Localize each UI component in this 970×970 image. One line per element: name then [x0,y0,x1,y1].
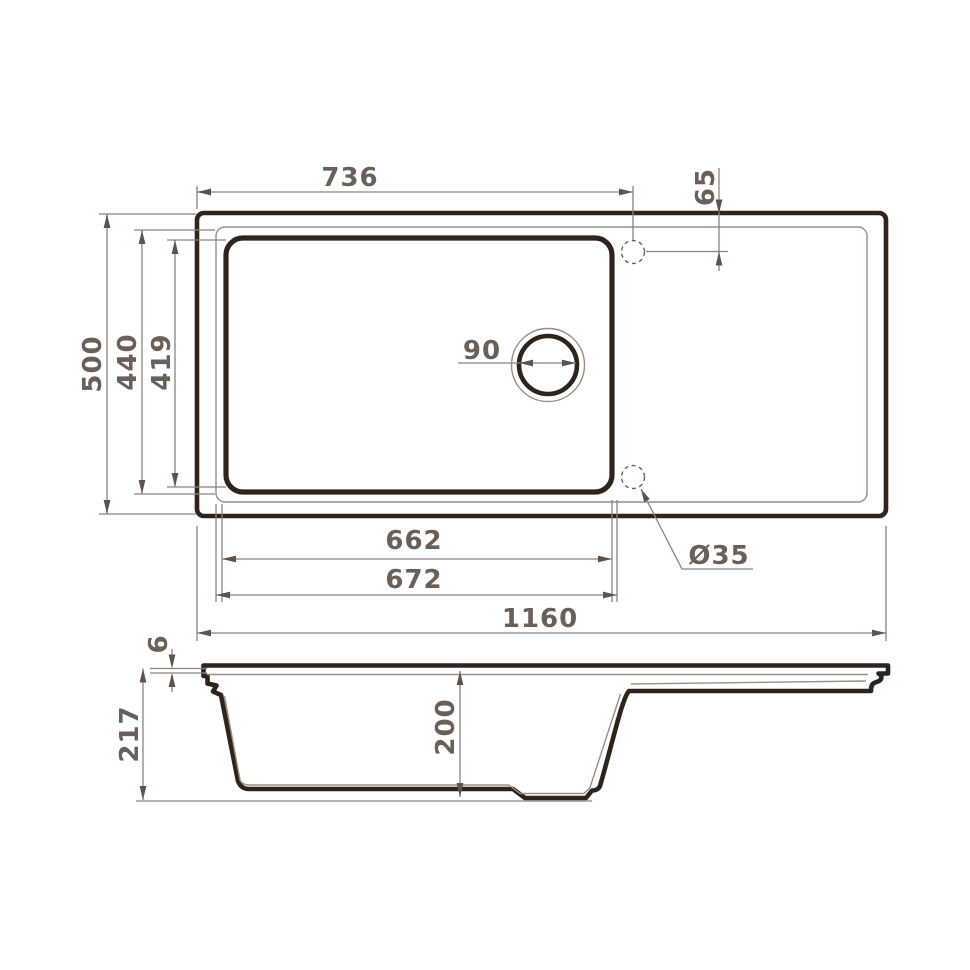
dim-6: 6 [144,634,207,692]
dim-label-736: 736 [321,163,378,193]
dim-217: 217 [115,669,592,802]
tap-hole-bottom [622,466,645,489]
dim-1160: 1160 [197,526,886,641]
top-view [197,213,886,516]
dim-label-662: 662 [385,526,442,556]
section-bowl-inner-line [225,694,621,794]
dim-label-500: 500 [78,335,108,392]
section-drainboard-surface [631,681,866,684]
dim-200: 200 [431,671,463,797]
tap-hole-top [622,241,645,264]
dim-label-440: 440 [113,333,143,390]
dim-label-419: 419 [147,333,177,390]
side-view: 6 217 200 [115,634,888,801]
drain-outer-circle [512,329,585,402]
dim-419: 419 [147,240,226,487]
dim-label-90: 90 [463,336,501,366]
technical-drawing-canvas: 736 65 500 440 [0,0,970,970]
dim-label-672: 672 [385,565,442,595]
dim-65: 65 [646,168,728,271]
bowl-outline [226,238,612,492]
sink-technical-drawing: 736 65 500 440 [0,0,970,970]
sink-outer-edge [197,213,886,516]
sink-inner-rim-line [216,227,867,502]
dim-736: 736 [197,163,633,240]
dim-label-200: 200 [431,698,461,755]
dim-label-6: 6 [144,634,174,653]
dim-label-65: 65 [691,168,721,206]
dim-label-1160: 1160 [502,604,578,634]
dim-label-217: 217 [115,705,145,762]
dim-label-tap-diameter: Ø35 [688,541,749,571]
section-profile [204,666,889,799]
